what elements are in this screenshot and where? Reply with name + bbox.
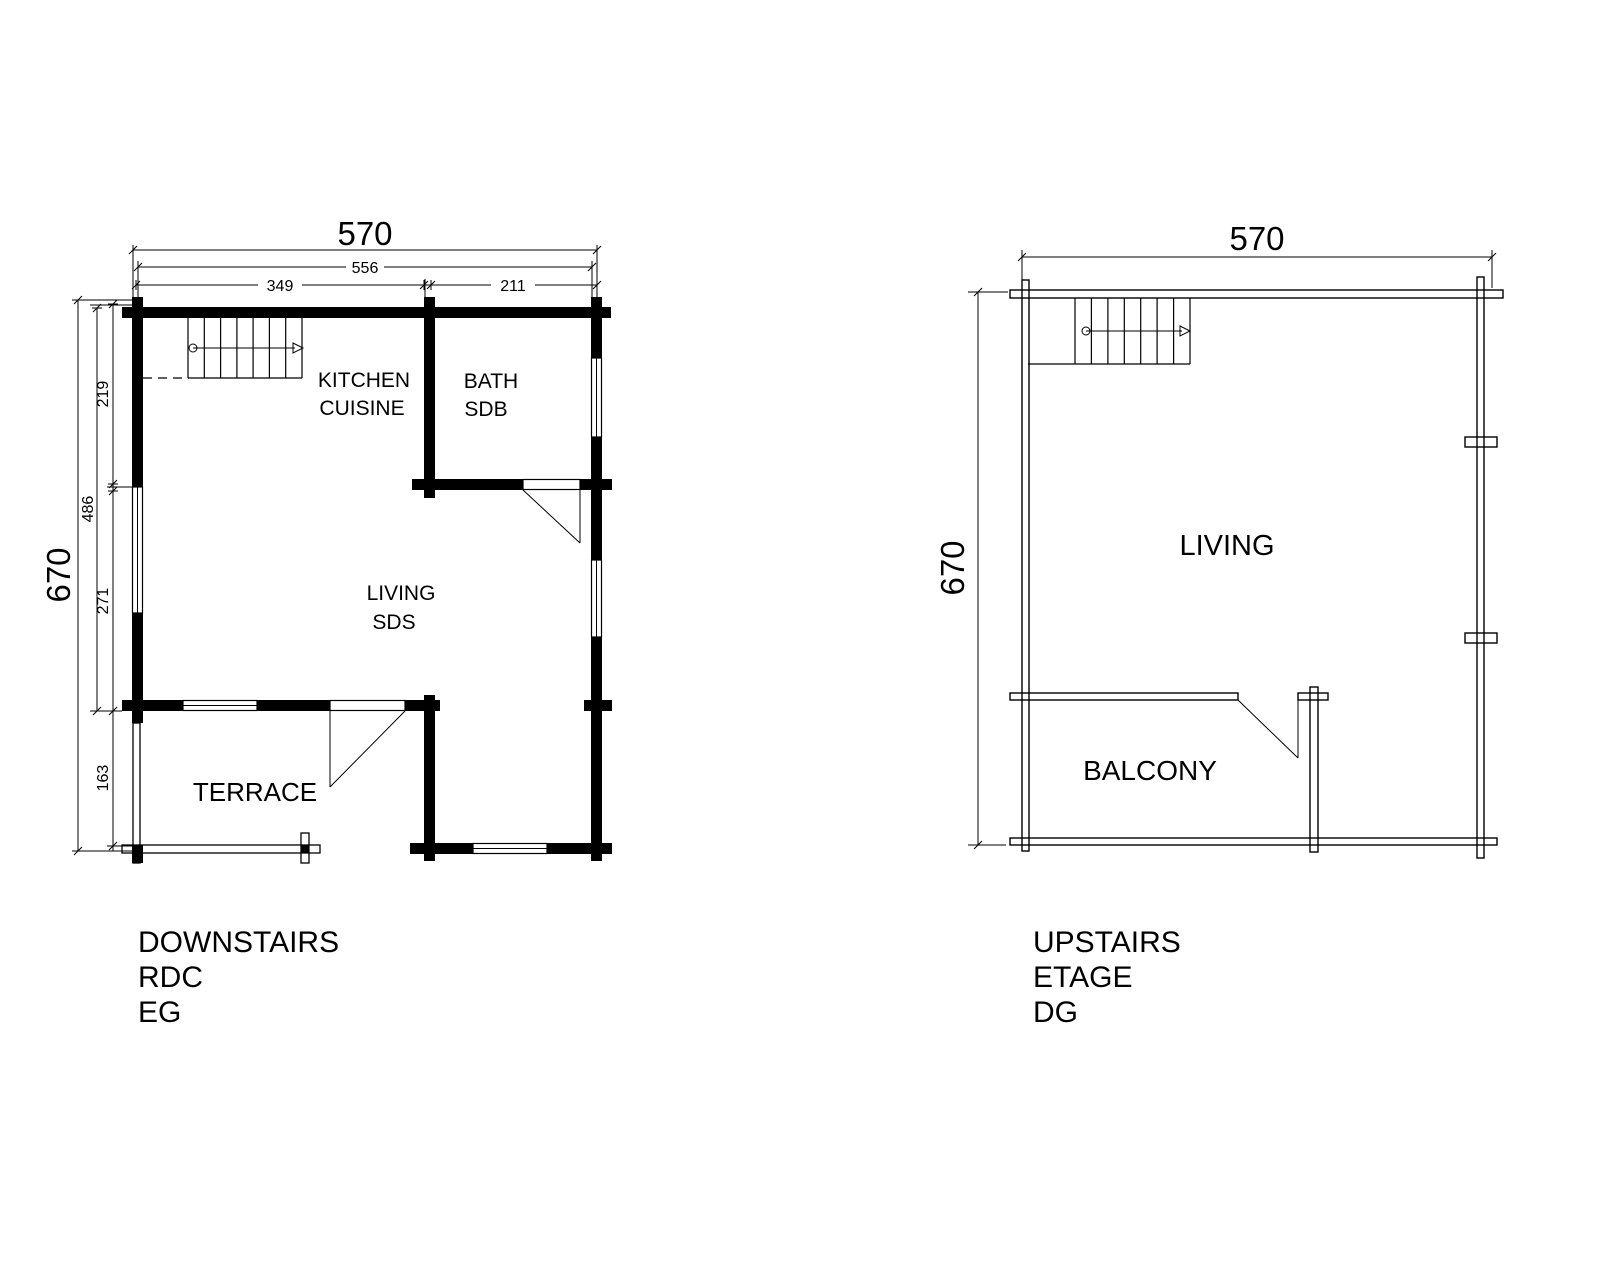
upstairs-title-line1: UPSTAIRS: [1033, 926, 1181, 959]
dim-total-height-upstairs: 670: [934, 540, 971, 595]
wall-lower-vertical: [424, 695, 435, 861]
downstairs-title-line3: EG: [138, 996, 181, 1029]
dim-inner-width: 556: [352, 260, 379, 277]
up-right-wall-log-tick-1: [1465, 437, 1497, 447]
up-balcony-wall-stub: [1298, 693, 1328, 700]
up-wall-top: [1010, 290, 1503, 298]
downstairs-plan: 570 556 349 211 670 486 219 271 163 KITC…: [40, 215, 612, 1029]
room-label-kitchen-fr: CUISINE: [319, 397, 404, 420]
dim-height-terrace: 163: [95, 765, 112, 792]
room-label-kitchen-en: KITCHEN: [318, 369, 410, 392]
wall-top: [122, 307, 611, 318]
upstairs-title-line2: ETAGE: [1033, 961, 1132, 994]
dim-total-width-downstairs: 570: [337, 215, 392, 252]
upstairs-plan: 570 670 LIVING BALCONY UPSTAIRS ETAGE DG: [934, 220, 1503, 1029]
door-terrace-leaf: [330, 701, 405, 711]
wall-right-2: [591, 437, 602, 560]
downstairs-title-line1: DOWNSTAIRS: [138, 926, 339, 959]
door-balcony-swing-diagonal: [1238, 700, 1298, 758]
wall-bath-bottom-left: [412, 479, 523, 490]
dim-total-width-upstairs: 570: [1229, 220, 1284, 257]
room-label-bath-en: BATH: [464, 370, 518, 393]
dim-extension-lines: [72, 245, 597, 851]
wall-kitchen-bath-divider: [424, 297, 435, 498]
upstairs-room-labels: LIVING BALCONY: [1083, 530, 1274, 786]
dim-width-left: 349: [267, 278, 294, 295]
floor-plan-drawing: 570 556 349 211 670 486 219 271 163 KITC…: [0, 0, 1600, 1280]
dim-width-right: 211: [500, 278, 526, 295]
wall-right-3: [591, 637, 602, 861]
downstairs-doors: [330, 480, 580, 788]
wall-bottom-left-seg: [410, 843, 473, 854]
wall-right-log-stub: [584, 700, 612, 711]
upstairs-stairs: [1028, 298, 1190, 364]
upstairs-title-line3: DG: [1033, 996, 1078, 1029]
door-bath-swing-diagonal: [523, 490, 580, 543]
up-wall-left: [1022, 280, 1029, 851]
dim-total-height-downstairs: 670: [40, 547, 77, 602]
dim-inner-height: 486: [80, 496, 97, 523]
terrace-post-left: [132, 845, 143, 863]
door-bath-leaf: [523, 480, 580, 490]
terrace-rail-bottom: [122, 845, 320, 853]
dim-height-top: 219: [95, 381, 112, 408]
room-label-living-fr: SDS: [372, 611, 415, 634]
downstairs-stairs: [143, 318, 303, 378]
up-wall-right: [1477, 277, 1484, 858]
balcony-post: [1310, 687, 1318, 852]
room-label-living-en: LIVING: [367, 582, 436, 605]
downstairs-title-line2: RDC: [138, 961, 203, 994]
floor-plan-canvas: 570 556 349 211 670 486 219 271 163 KITC…: [0, 0, 1600, 1280]
room-label-terrace: TERRACE: [193, 777, 317, 807]
upstairs-title: UPSTAIRS ETAGE DG: [1033, 926, 1181, 1029]
wall-right-1: [591, 297, 602, 358]
wall-bottom-right-seg: [547, 843, 612, 854]
wall-left-upper: [132, 297, 143, 487]
downstairs-title: DOWNSTAIRS RDC EG: [138, 926, 339, 1029]
wall-terrace-b: [257, 700, 330, 711]
wall-bath-bottom-right: [580, 479, 612, 490]
up-rail-bottom: [1010, 838, 1497, 845]
door-terrace-swing-diagonal: [330, 711, 405, 787]
room-label-living-up: LIVING: [1179, 530, 1274, 562]
terrace-post-mid: [301, 845, 309, 853]
downstairs-room-labels: KITCHEN CUISINE BATH SDB LIVING SDS TERR…: [193, 369, 518, 807]
room-label-bath-fr: SDB: [464, 398, 507, 421]
up-right-wall-log-tick-2: [1465, 633, 1497, 643]
upstairs-doors: [1238, 700, 1298, 758]
dim-height-mid: 271: [95, 588, 112, 615]
terrace-rail-left: [133, 723, 140, 863]
up-balcony-wall: [1010, 693, 1238, 700]
wall-terrace-a: [122, 700, 183, 711]
room-label-balcony: BALCONY: [1083, 755, 1217, 786]
